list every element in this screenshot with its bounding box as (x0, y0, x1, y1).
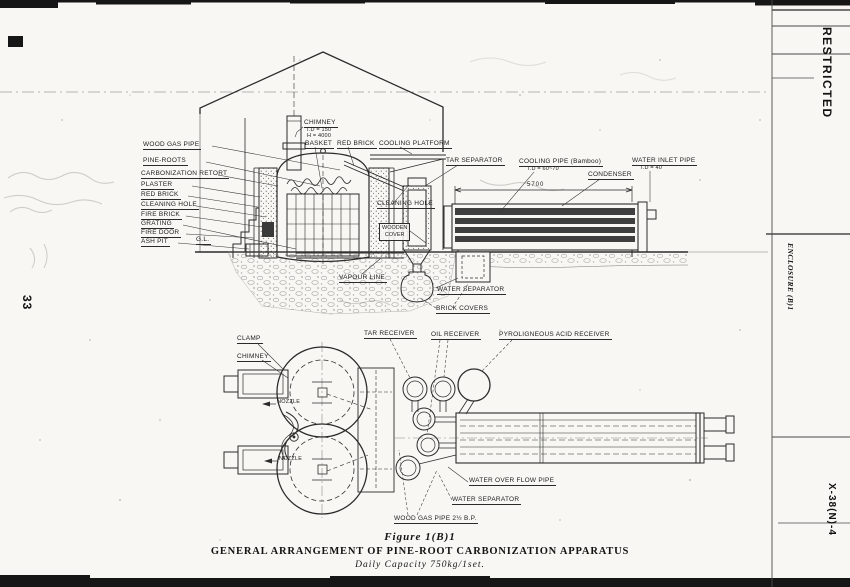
label-wood-gas-pipe: WOOD GAS PIPE (143, 141, 201, 150)
label-brick-covers: BRICK COVERS (436, 305, 490, 314)
page-number: 33 (20, 295, 34, 310)
label-pine-roots: PINE-ROOTS (143, 157, 188, 166)
label-basket: BASKET (305, 140, 334, 149)
label-cleaning-hole-mid: CLEANING HOLE (377, 200, 435, 209)
label-cooling-platform: COOLING PLATFORM (379, 140, 452, 149)
plan-view (224, 339, 734, 518)
label-nozzle-2: NOZZLE (279, 456, 304, 463)
label-tar-receiver: TAR RECEIVER (364, 330, 417, 339)
label-chimney-plan: CHIMNEY (237, 353, 271, 362)
drawing-canvas (0, 0, 850, 587)
water-inlet-dim: I.D = 40 (641, 165, 662, 171)
label-wooden-cover: WOODEN COVER (379, 223, 410, 241)
restricted-stamp: RESTRICTED (820, 27, 834, 119)
wooden-cover-line2: COVER (382, 232, 407, 239)
label-carbonization-retort: CARBONIZATION RETORT (141, 170, 229, 179)
label-cleaning-hole-left: CLEANING HOLE (141, 201, 199, 210)
condenser-length-dim: 5700 (527, 182, 544, 189)
document-number: X-38(N)-4 (826, 483, 837, 536)
label-tar-separator: TAR SEPARATOR (446, 157, 505, 166)
label-clamp: CLAMP (237, 335, 263, 344)
label-ground-level: G.L. (196, 236, 211, 245)
label-pyroligneous-receiver: PYROLIGNEOUS ACID RECEIVER (499, 331, 612, 340)
figure-number: Figure 1(B)1 (170, 531, 670, 543)
label-condenser: CONDENSER (588, 171, 634, 180)
label-red-brick-left: RED BRICK (141, 191, 181, 200)
scanned-drawing-page: WOOD GAS PIPE PINE-ROOTS CARBONIZATION R… (0, 0, 850, 587)
label-vapour-line: VAPOUR LINE (339, 274, 387, 283)
chimney-dim-h: H = 4000 (307, 133, 331, 139)
figure-caption: Figure 1(B)1 GENERAL ARRANGEMENT OF PINE… (170, 531, 670, 570)
label-water-overflow-pipe: WATER OVER FLOW PIPE (469, 477, 556, 486)
wooden-cover-line1: WOODEN (382, 225, 407, 232)
label-ash-pit: ASH PIT (141, 238, 170, 247)
margin-rules (766, 0, 850, 587)
figure-title: GENERAL ARRANGEMENT OF PINE-ROOT CARBONI… (170, 546, 670, 557)
enclosure-number: ENCLOSURE (B)1 (786, 243, 795, 311)
figure-subtitle: Daily Capacity 750kg/1set. (170, 560, 670, 570)
label-wood-gas-pipe-plan: WOOD GAS PIPE 2½ B.P. (394, 515, 478, 524)
label-water-separator-elev: WATER SEPARATOR (437, 286, 506, 295)
label-red-brick-top: RED BRICK (337, 140, 377, 149)
label-oil-receiver: OIL RECEIVER (431, 331, 481, 340)
label-water-separator-plan: WATER SEPARATOR (452, 496, 521, 505)
label-plaster: PLASTER (141, 181, 174, 190)
cooling-pipe-dim: I.D = 60~70 (528, 166, 559, 172)
label-nozzle-1: NOZZLE (277, 399, 302, 406)
